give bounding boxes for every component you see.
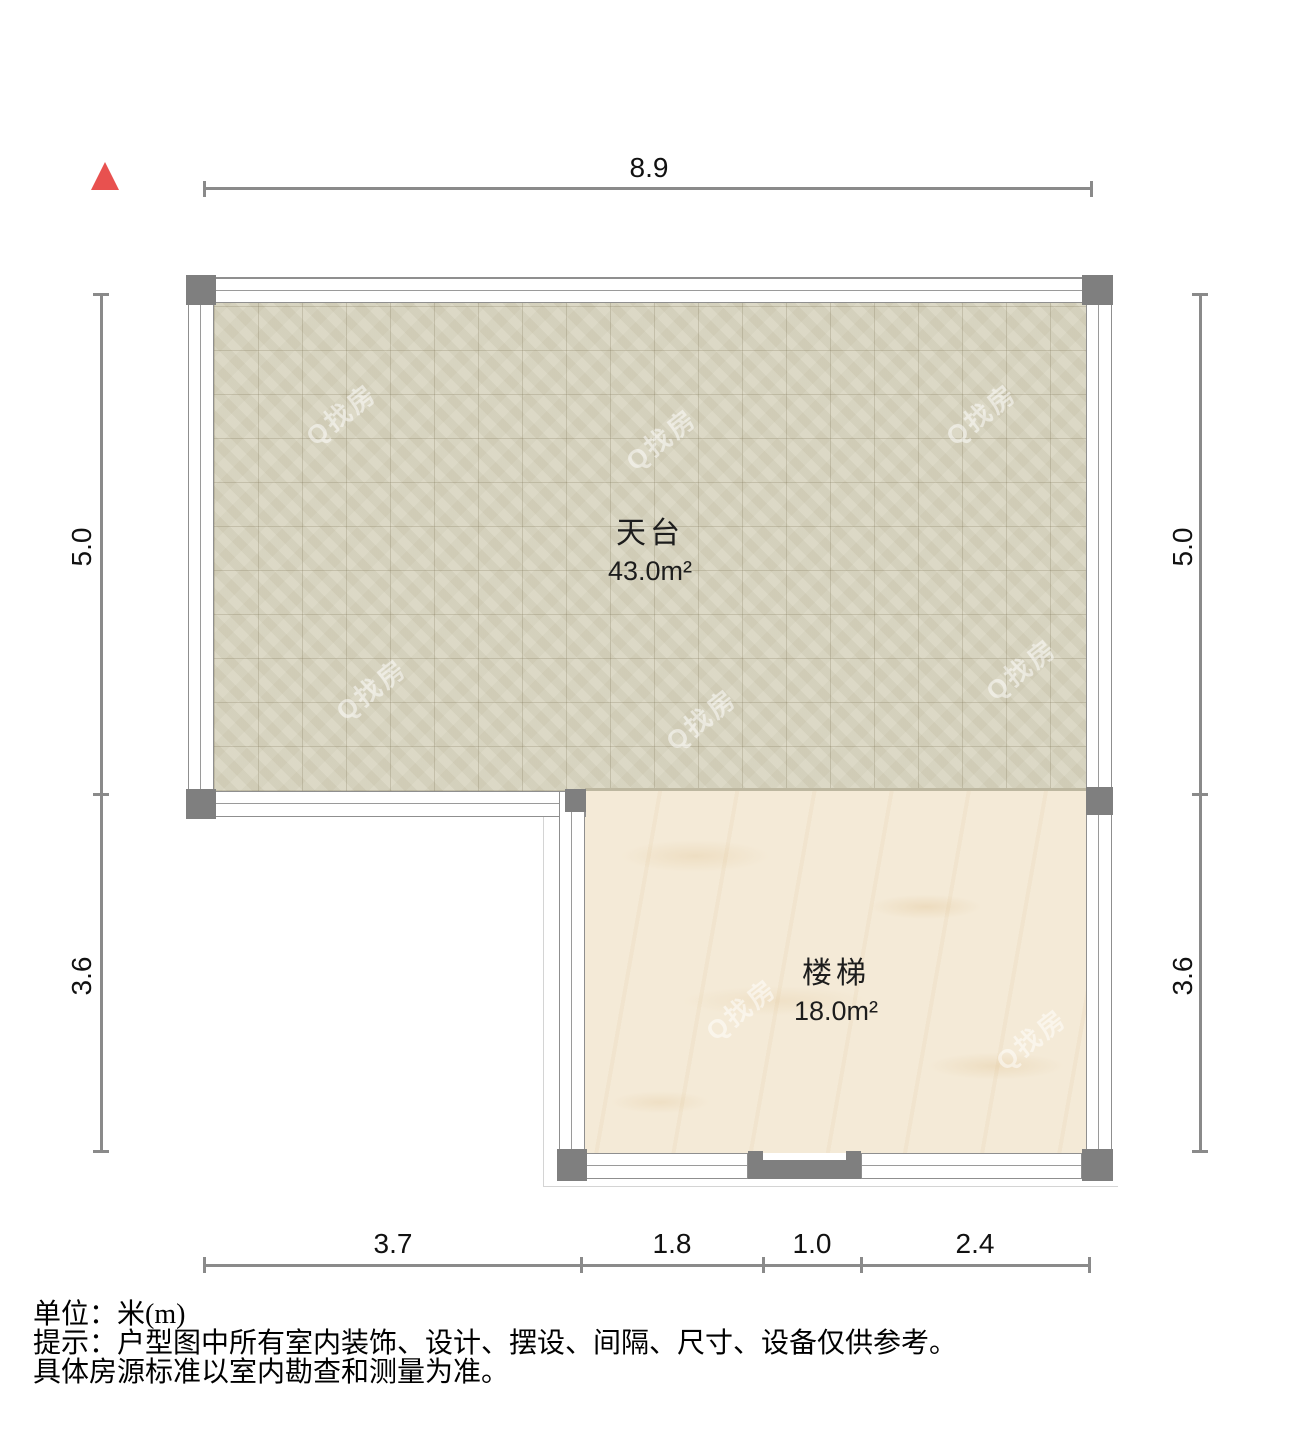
dimension-tick — [1192, 1150, 1208, 1153]
dimension-line-top — [205, 187, 1093, 190]
north-arrow-icon — [91, 162, 119, 190]
room-boundary-line — [585, 788, 1086, 791]
dimension-tick — [93, 293, 109, 296]
dimension-value-top: 8.9 — [599, 152, 699, 184]
dimension-value-right-2: 3.6 — [1167, 926, 1199, 1026]
room-area: 43.0m² — [608, 556, 692, 587]
dimension-tick — [203, 1257, 206, 1273]
dimension-tick — [1192, 793, 1208, 796]
wall-terrace-west — [188, 277, 214, 818]
unit-note: 单位：米(m) — [33, 1300, 1273, 1329]
tip-note-line2: 具体房源标准以室内勘查和测量为准。 — [33, 1358, 1273, 1387]
footer-notes: 单位：米(m) 提示：户型图中所有室内装饰、设计、摆设、间隔、尺寸、设备仅供参考… — [33, 1300, 1273, 1387]
dimension-value-right-1: 5.0 — [1167, 497, 1199, 597]
dimension-line-right — [1199, 295, 1202, 1153]
dimension-line-bottom — [205, 1264, 1091, 1267]
dimension-tick — [1090, 181, 1093, 197]
tip-note-line1: 提示：户型图中所有室内装饰、设计、摆设、间隔、尺寸、设备仅供参考。 — [33, 1329, 1273, 1358]
wall-east — [1086, 277, 1112, 1180]
pillar-bottom-left — [557, 1149, 587, 1181]
room-label-terrace: 天台 43.0m² — [550, 508, 750, 587]
dimension-tick — [1192, 293, 1208, 296]
room-name: 天台 — [616, 508, 684, 552]
wall-stairs-west — [559, 791, 585, 1180]
dimension-tick — [93, 1150, 109, 1153]
dimension-tick — [203, 181, 206, 197]
wall-terrace-north — [188, 277, 1112, 303]
pillar-mid-left — [186, 789, 216, 819]
dimension-tick — [93, 793, 109, 796]
door-sill — [748, 1160, 861, 1179]
dimension-value-left-2: 3.6 — [66, 926, 98, 1026]
wall-stairs-south-left — [559, 1153, 748, 1179]
dimension-value-left-1: 5.0 — [66, 497, 98, 597]
dimension-value-bottom-3: 1.0 — [762, 1228, 862, 1260]
dimension-value-bottom-2: 1.8 — [622, 1228, 722, 1260]
pillar-bottom-right — [1082, 1149, 1113, 1181]
pillar-top-right — [1082, 275, 1113, 305]
floor-plan-page: Q找房 Q找房 Q找房 Q找房 Q找房 Q找房 Q找房 Q找房 天台 43.0m… — [0, 0, 1301, 1454]
room-area: 18.0m² — [794, 996, 878, 1027]
dimension-value-bottom-4: 2.4 — [925, 1228, 1025, 1260]
exterior-outline — [543, 1186, 1118, 1187]
room-name: 楼梯 — [802, 948, 870, 992]
pillar-mid-center — [565, 789, 586, 812]
dimension-value-bottom-1: 3.7 — [343, 1228, 443, 1260]
dimension-tick — [1088, 1257, 1091, 1273]
wall-stairs-south-right — [861, 1153, 1082, 1179]
pillar-mid-right — [1086, 787, 1113, 815]
dimension-tick — [580, 1257, 583, 1273]
dimension-line-left — [100, 295, 103, 1153]
wall-terrace-south — [188, 791, 586, 817]
exterior-outline — [543, 817, 544, 1187]
room-label-stairs: 楼梯 18.0m² — [736, 948, 936, 1027]
pillar-top-left — [186, 275, 216, 305]
